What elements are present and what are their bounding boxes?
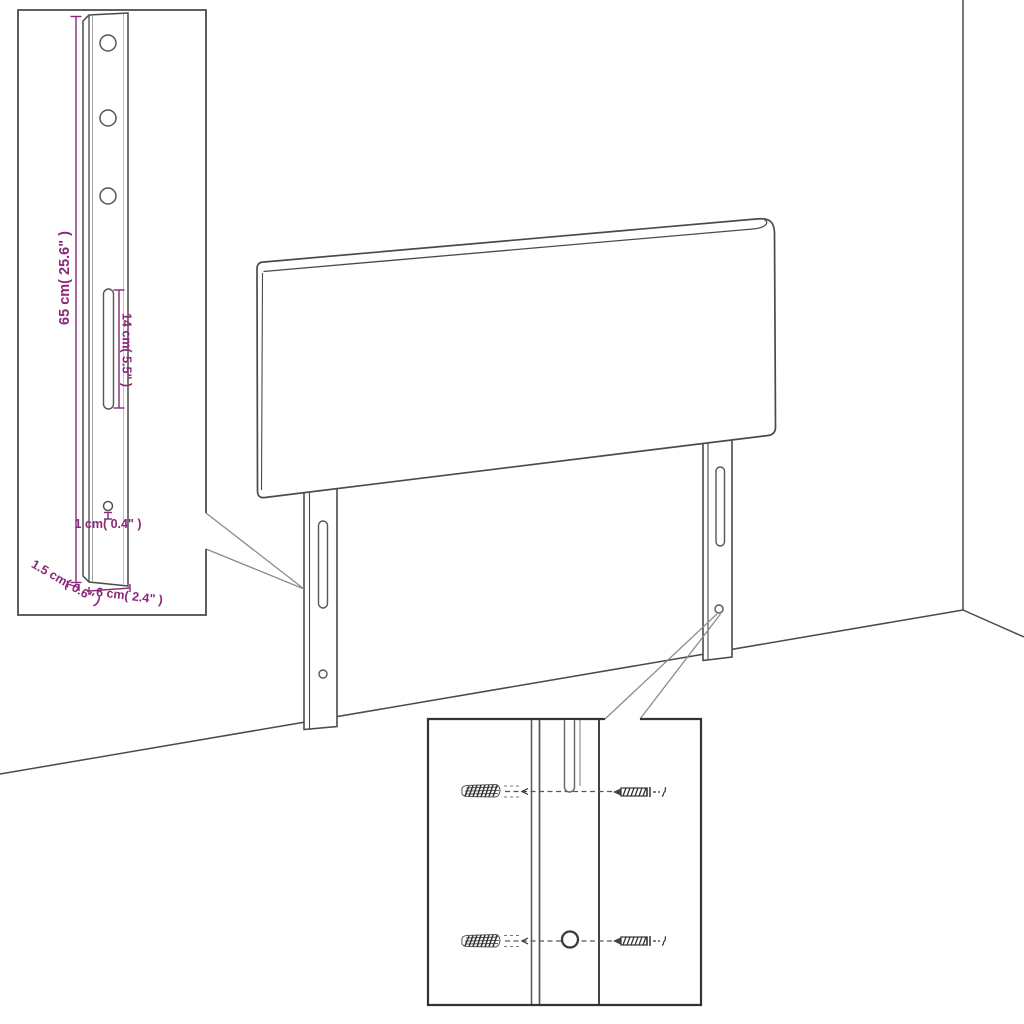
channel-hole <box>562 932 578 948</box>
screw-icon <box>613 787 666 797</box>
diagram-canvas: 65 cm( 25.6" ) 14 cm( 5.5" ) 1 cm( 0.4" … <box>0 0 1024 1024</box>
bracket-small-hole <box>104 502 113 511</box>
inset-bracket-detail: 65 cm( 25.6" ) 14 cm( 5.5" ) 1 cm( 0.4" … <box>18 10 206 615</box>
channel-slot <box>565 720 575 792</box>
leg-slot <box>716 467 725 546</box>
floor-line-left <box>0 610 963 774</box>
wall-anchor-icon <box>462 785 500 798</box>
dimension-label-slot: 14 cm( 5.5" ) <box>120 313 134 387</box>
dimension-label-hole: 1 cm( 0.4" ) <box>74 517 141 531</box>
assembly-diagram: 65 cm( 25.6" ) 14 cm( 5.5" ) 1 cm( 0.4" … <box>0 0 1024 1024</box>
dimension-label-width: 6 cm( 2.4" ) <box>95 585 163 607</box>
headboard-panel <box>257 219 776 498</box>
bracket-slot <box>104 289 114 409</box>
inset-mounting-detail <box>428 719 701 1005</box>
leg-hole <box>715 605 723 613</box>
mounting-row-bottom <box>462 932 666 948</box>
leg-hole <box>319 670 327 678</box>
screw-icon <box>613 936 666 946</box>
floor-line-right <box>963 610 1024 637</box>
leg-slot <box>319 521 328 608</box>
dimension-label-height: 65 cm( 25.6" ) <box>57 231 73 325</box>
callout-wedge-left <box>206 513 304 589</box>
wall-anchor-icon <box>462 935 500 948</box>
